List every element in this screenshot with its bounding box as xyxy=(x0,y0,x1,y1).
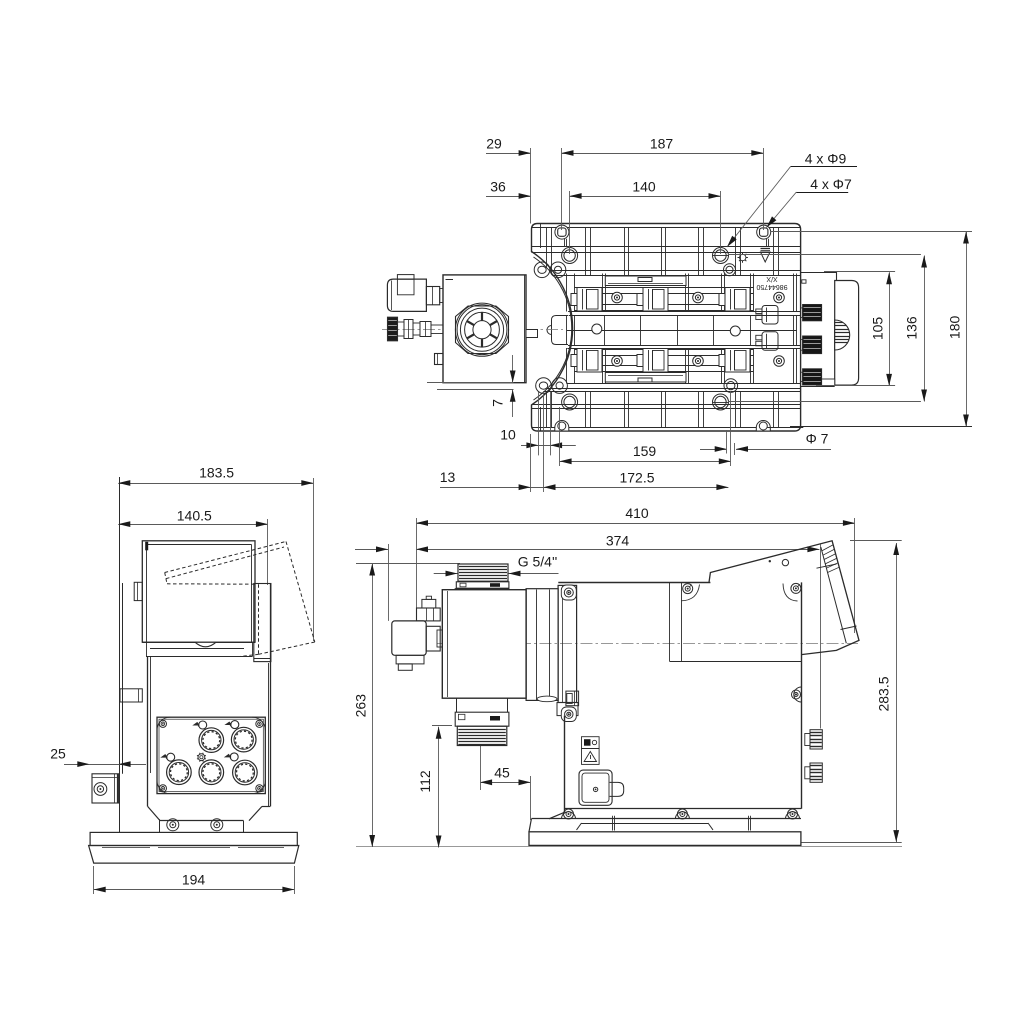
svg-text:410: 410 xyxy=(625,505,649,521)
svg-text:45: 45 xyxy=(494,765,510,781)
svg-text:105: 105 xyxy=(869,317,885,341)
svg-text:10: 10 xyxy=(500,427,516,443)
svg-text:112: 112 xyxy=(417,770,433,793)
svg-text:374: 374 xyxy=(606,532,630,548)
svg-text:7: 7 xyxy=(490,399,506,407)
svg-text:G 5/4'': G 5/4'' xyxy=(518,554,558,570)
svg-text:13: 13 xyxy=(440,469,456,485)
svg-text:263: 263 xyxy=(353,694,369,718)
svg-text:140.5: 140.5 xyxy=(177,508,212,524)
svg-text:4 x Φ9: 4 x Φ9 xyxy=(805,151,847,167)
svg-text:4 x Φ7: 4 x Φ7 xyxy=(810,176,852,192)
svg-text:Φ 7: Φ 7 xyxy=(806,431,829,447)
svg-text:159: 159 xyxy=(633,443,657,459)
svg-text:187: 187 xyxy=(650,136,674,152)
svg-text:25: 25 xyxy=(50,746,66,762)
svg-text:136: 136 xyxy=(904,316,920,340)
svg-text:36: 36 xyxy=(490,179,506,195)
svg-text:283.5: 283.5 xyxy=(876,676,892,711)
svg-text:98644750: 98644750 xyxy=(756,283,787,290)
svg-text:172.5: 172.5 xyxy=(619,470,654,486)
svg-text:29: 29 xyxy=(486,136,502,152)
svg-text:140: 140 xyxy=(632,179,656,195)
svg-text:X/X: X/X xyxy=(766,275,778,282)
svg-text:194: 194 xyxy=(182,872,206,888)
svg-text:180: 180 xyxy=(947,316,963,340)
svg-text:183.5: 183.5 xyxy=(199,465,234,481)
